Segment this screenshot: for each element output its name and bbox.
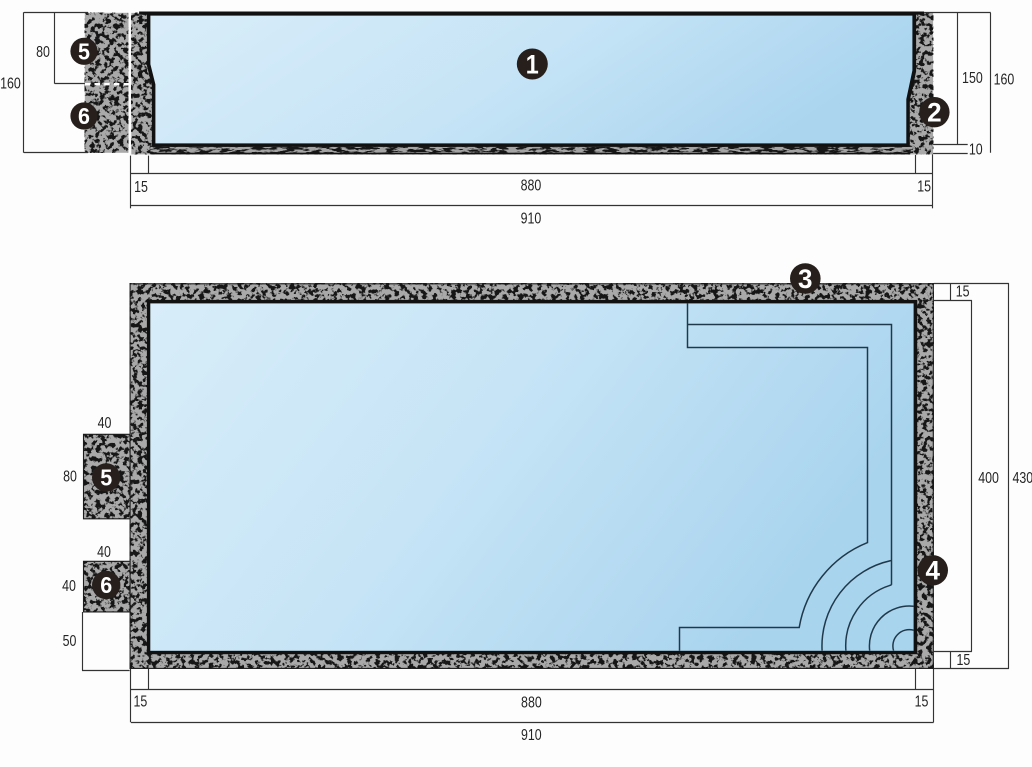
svg-text:15: 15 bbox=[957, 652, 971, 669]
svg-text:880: 880 bbox=[521, 694, 542, 711]
svg-text:50: 50 bbox=[63, 633, 77, 650]
svg-text:40: 40 bbox=[98, 415, 112, 432]
svg-text:40: 40 bbox=[62, 578, 76, 595]
svg-text:15: 15 bbox=[915, 693, 929, 710]
svg-text:2: 2 bbox=[927, 98, 942, 128]
svg-text:160: 160 bbox=[994, 71, 1015, 88]
svg-text:4: 4 bbox=[926, 556, 941, 586]
svg-text:5: 5 bbox=[78, 38, 90, 64]
svg-text:910: 910 bbox=[521, 210, 542, 227]
svg-text:6: 6 bbox=[100, 572, 112, 598]
svg-text:1: 1 bbox=[526, 49, 539, 79]
svg-text:15: 15 bbox=[917, 179, 931, 196]
svg-text:910: 910 bbox=[521, 727, 542, 744]
svg-text:80: 80 bbox=[36, 44, 50, 61]
svg-text:880: 880 bbox=[521, 178, 542, 195]
svg-text:3: 3 bbox=[798, 264, 813, 294]
svg-text:15: 15 bbox=[956, 284, 970, 301]
svg-text:10: 10 bbox=[969, 141, 983, 158]
svg-text:15: 15 bbox=[134, 694, 148, 711]
svg-text:80: 80 bbox=[63, 468, 77, 485]
svg-text:430: 430 bbox=[1012, 470, 1032, 487]
svg-text:160: 160 bbox=[0, 75, 21, 92]
svg-text:150: 150 bbox=[962, 70, 983, 87]
svg-text:15: 15 bbox=[134, 179, 148, 196]
svg-text:40: 40 bbox=[97, 544, 111, 561]
svg-text:5: 5 bbox=[100, 465, 112, 491]
svg-text:400: 400 bbox=[978, 470, 999, 487]
svg-text:6: 6 bbox=[78, 103, 90, 129]
